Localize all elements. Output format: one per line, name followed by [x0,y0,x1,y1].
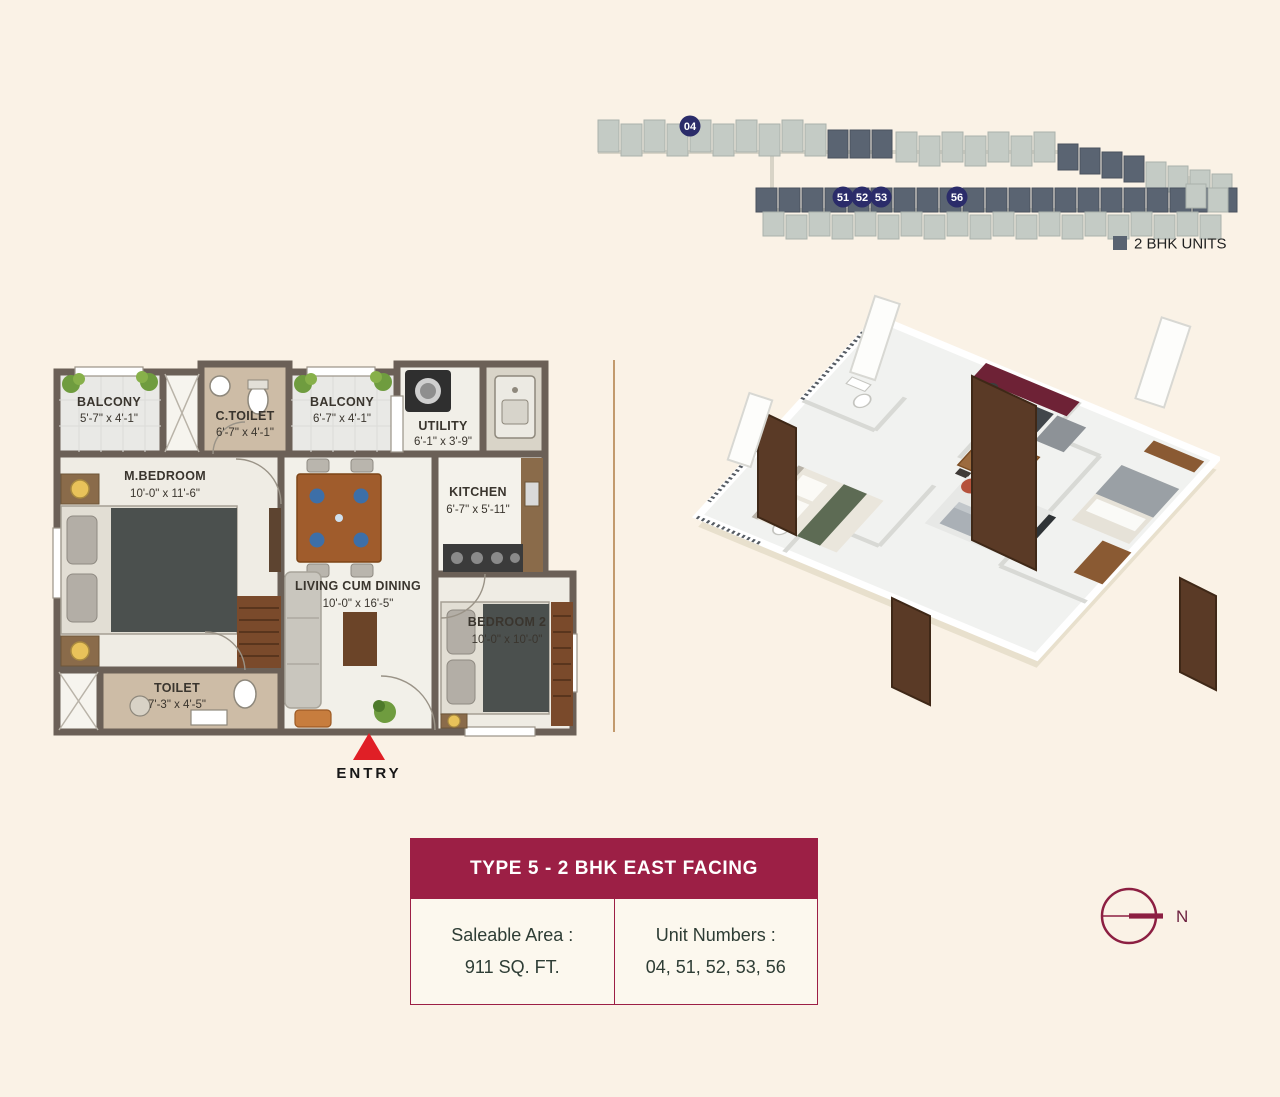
lamp-icon [448,715,460,727]
label-toilet: TOILET [154,681,200,695]
saleable-area-label: Saleable Area : [419,920,606,952]
north-label: N [1176,907,1188,926]
label-bedroom-2: BEDROOM 2 [468,615,546,629]
label-balcony-1: BALCONY [77,395,141,409]
label-m-bedroom: M.BEDROOM [124,469,206,483]
legend-label: 2 BHK UNITS [1134,236,1227,253]
entry-marker: ENTRY [336,733,401,782]
entry-arrow-icon [353,733,385,760]
svg-text:6'-7" x 4'-1": 6'-7" x 4'-1" [313,413,371,425]
compass: N [1096,880,1206,954]
unit-marker-04-label: 04 [684,121,697,133]
saleable-area-value: 911 SQ. FT. [419,952,606,984]
armchair [295,710,331,727]
toilet-icon [234,680,256,708]
svg-text:6'-7" x 4'-1": 6'-7" x 4'-1" [216,427,274,439]
unit-marker-56-label: 56 [951,192,963,204]
svg-text:5'-7" x 4'-1": 5'-7" x 4'-1" [80,413,138,425]
unit-marker-52-label: 52 [856,192,868,204]
bed-blanket [111,508,237,632]
info-box: TYPE 5 - 2 BHK EAST FACING Saleable Area… [410,838,818,1005]
svg-text:6'-1" x 3'-9": 6'-1" x 3'-9" [414,436,472,448]
floor-plan-2d: BALCONY 5'-7" x 4'-1" C.TOILET 6'-7" x 4… [45,358,585,782]
label-living: LIVING CUM DINING [295,579,421,593]
info-box-title: TYPE 5 - 2 BHK EAST FACING [411,839,817,899]
unit-marker-53-label: 53 [875,192,887,204]
kitchen-counter [521,458,543,572]
svg-text:10'-0" x 16'-5": 10'-0" x 16'-5" [323,598,394,610]
unit-numbers-label: Unit Numbers : [623,920,810,952]
svg-text:10'-0" x 10'-0": 10'-0" x 10'-0" [472,634,543,646]
label-kitchen: KITCHEN [449,485,507,499]
site-map-buildings [598,120,1237,239]
saleable-area-cell: Saleable Area : 911 SQ. FT. [411,899,614,1004]
unit-marker-04: 04 [680,116,701,137]
label-balcony-2: BALCONY [310,395,374,409]
tv-unit [343,612,377,666]
washbasin-icon [191,710,227,725]
unit-numbers-value: 04, 51, 52, 53, 56 [623,952,810,984]
lamp-icon [71,642,89,660]
svg-text:6'-7" x 5'-11": 6'-7" x 5'-11" [446,504,509,516]
panel-divider [613,360,615,732]
dresser [269,508,281,572]
unit-numbers-cell: Unit Numbers : 04, 51, 52, 53, 56 [614,899,818,1004]
site-map-legend: 2 BHK UNITS [1113,236,1227,253]
legend-swatch-icon [1113,236,1127,250]
compass-needle [1129,913,1163,918]
unit-marker-56: 56 [947,187,968,208]
svg-text:7'-3" x 4'-5": 7'-3" x 4'-5" [148,699,206,711]
unit-marker-51: 51 [833,187,854,208]
label-c-toilet: C.TOILET [215,409,274,423]
lamp-icon [71,480,89,498]
unit-marker-51-label: 51 [837,192,849,204]
unit-marker-53: 53 [871,187,892,208]
svg-text:10'-0" x 11'-6": 10'-0" x 11'-6" [130,488,200,500]
label-utility: UTILITY [418,419,468,433]
washbasin-icon [210,376,230,396]
unit-marker-52: 52 [852,187,873,208]
entry-label: ENTRY [336,765,401,782]
floor-plan-3d [620,280,1220,790]
site-map: 04 51 52 53 56 2 BHK UNITS [588,100,1244,260]
page-canvas: 04 51 52 53 56 2 BHK UNITS [0,0,1280,1097]
